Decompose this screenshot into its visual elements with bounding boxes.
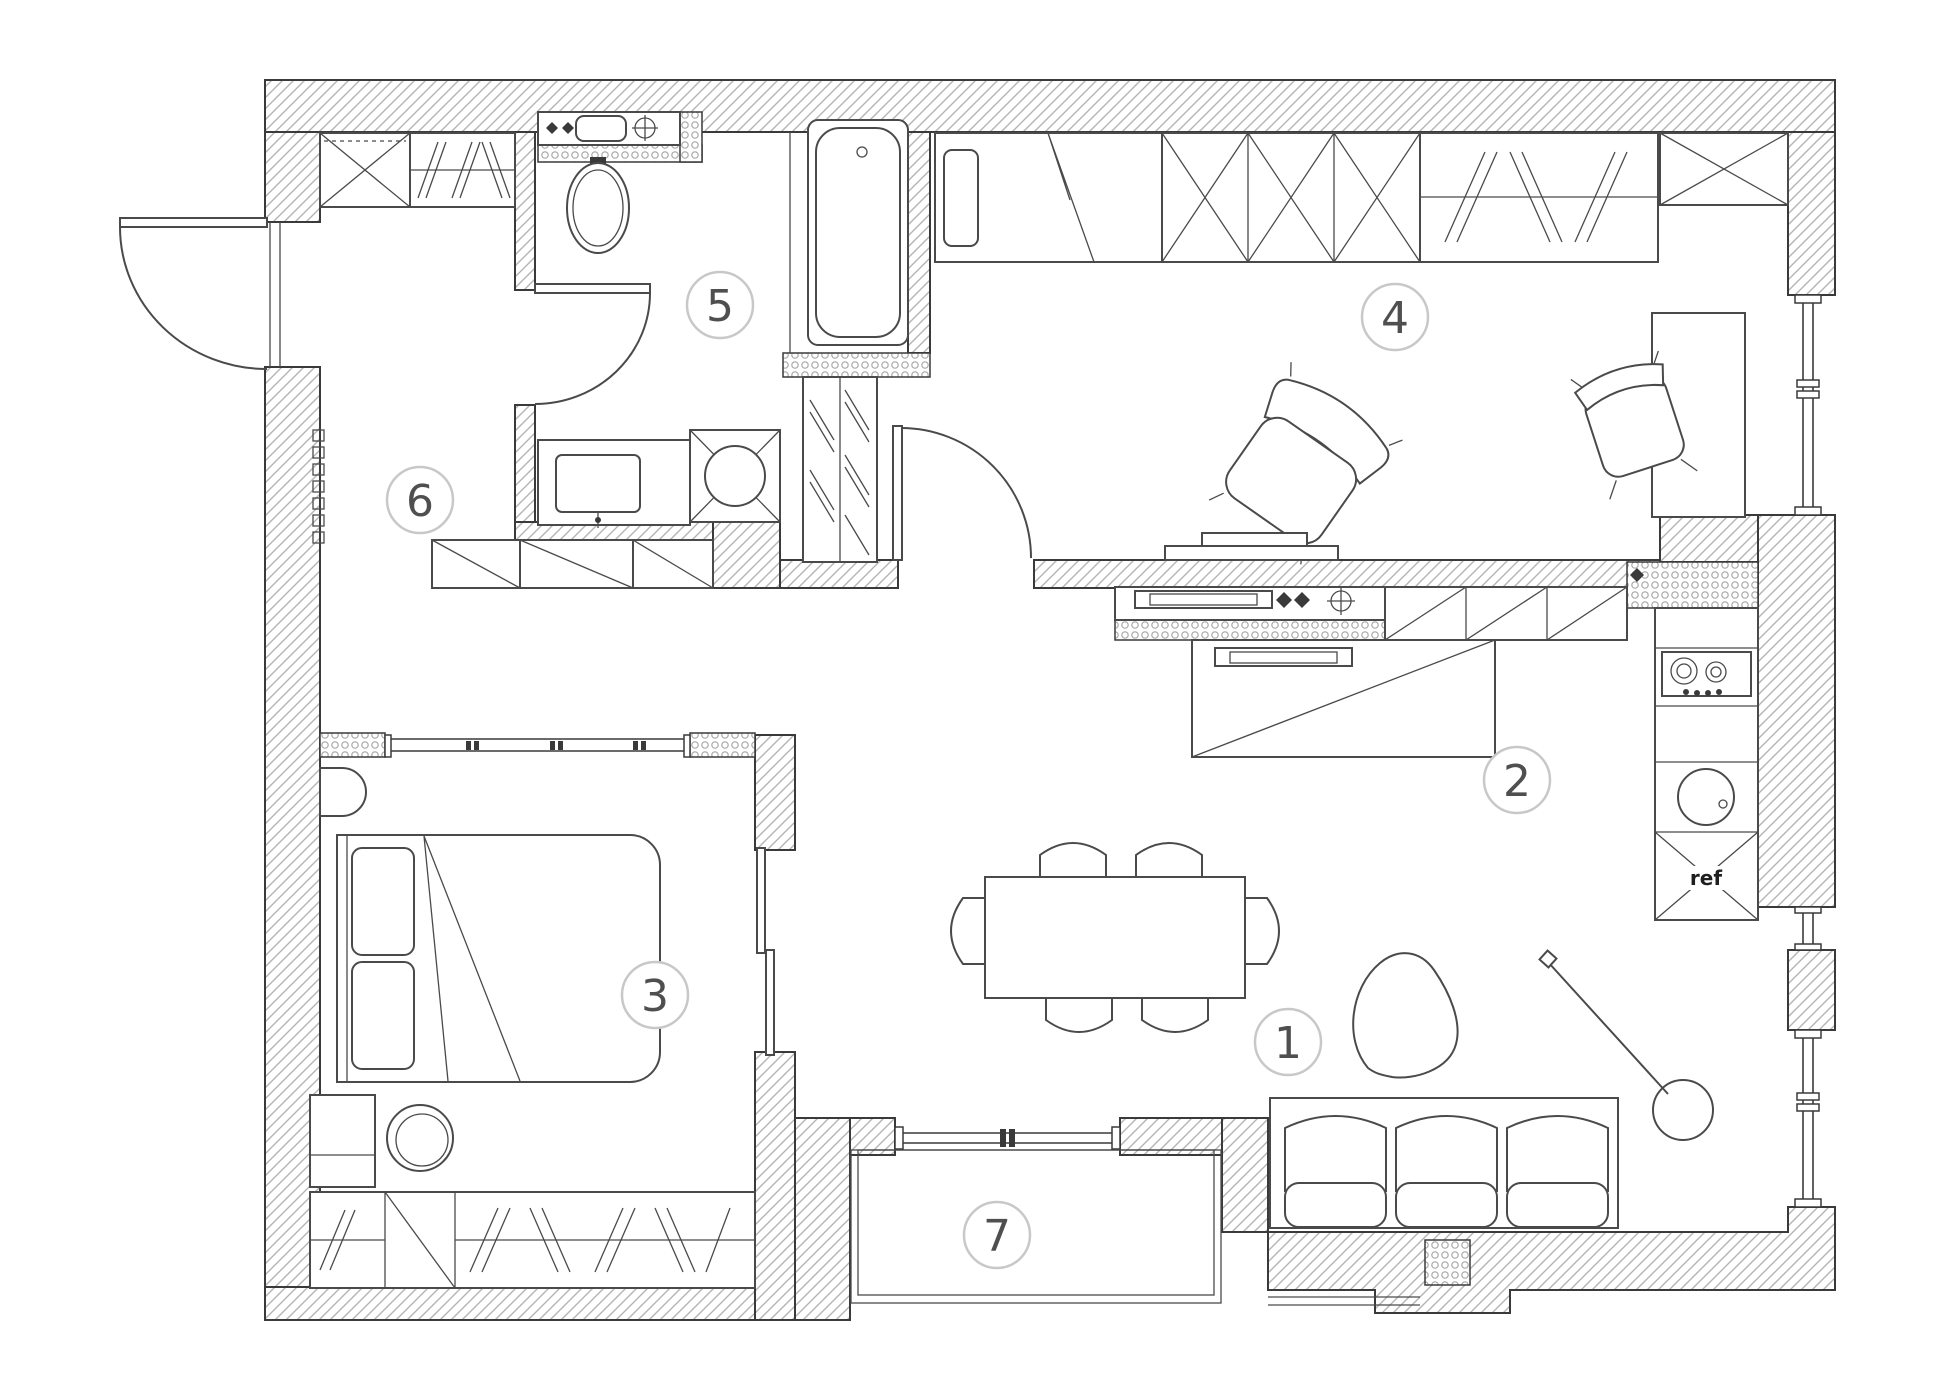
- entrance-door: [120, 218, 280, 369]
- wall-balcony-right-pillar: [1222, 1118, 1268, 1232]
- wall-balcony-left-pillar: [795, 1118, 850, 1320]
- wall-bedroom-right-lower: [755, 1052, 795, 1320]
- svg-text:7: 7: [983, 1211, 1011, 1262]
- dining-table: [985, 877, 1245, 998]
- wall-top: [265, 80, 1835, 132]
- wall-bathroom-left-a: [515, 132, 535, 290]
- coffee-table: [1353, 953, 1457, 1077]
- bathroom-door-swing: [535, 293, 650, 404]
- wall-bathroom-right: [908, 132, 930, 353]
- svg-text:5: 5: [706, 281, 734, 332]
- sofa: [1270, 1098, 1618, 1228]
- room4-door: [893, 426, 1031, 560]
- bathroom-sink-counter: [538, 440, 690, 528]
- room4-bed: [935, 133, 1162, 262]
- bathroom-door-leaf: [535, 284, 650, 293]
- svg-text:4: 4: [1381, 293, 1409, 344]
- entrance-door-leaf: [120, 218, 267, 227]
- washing-machine: [690, 430, 780, 522]
- svg-text:2: 2: [1503, 756, 1531, 807]
- refrigerator-label: ref: [1690, 866, 1722, 890]
- bedroom-sliding-door: [757, 848, 774, 1055]
- partition-counter-strip: [1115, 620, 1385, 640]
- window-balcony-door: [895, 1127, 1120, 1149]
- kitchen-right-column: ref: [1655, 608, 1758, 920]
- wall-right-kitchen-block: [1758, 515, 1835, 907]
- entrance-door-swing: [120, 227, 267, 369]
- toilet: [567, 157, 629, 253]
- room-label-bedroom: 3: [622, 962, 688, 1028]
- room-label-room4: 4: [1362, 284, 1428, 350]
- wall-room4-bottom-left: [780, 560, 898, 588]
- partition-kitchen-top: [1627, 562, 1758, 608]
- bedroom-bed: [337, 835, 660, 1082]
- window-living-right: [1795, 1030, 1821, 1207]
- kitchen-counter-top: [1115, 587, 1385, 620]
- kitchen-oven-cabinet: [1192, 640, 1495, 757]
- glass-partition-bedroom: [385, 735, 690, 757]
- svg-text:1: 1: [1274, 1018, 1302, 1069]
- partition-bedroom-left: [320, 733, 385, 757]
- room-label-bathroom: 5: [687, 272, 753, 338]
- floor-plan: ref: [0, 0, 1956, 1379]
- room-label-hallway: 6: [387, 467, 453, 533]
- hallway-wardrobe-top: [320, 133, 515, 207]
- room-label-living: 1: [1255, 1009, 1321, 1075]
- wall-right-mid: [1788, 950, 1835, 1030]
- bathtub: [790, 120, 908, 353]
- wall-right-corner-top: [1660, 515, 1758, 562]
- wall-left-upper: [265, 132, 320, 222]
- window-room4-right: [1795, 295, 1821, 515]
- bathroom-vanity: [538, 112, 680, 145]
- bedroom-cabinet: [310, 1095, 375, 1187]
- room-label-balcony: 7: [964, 1202, 1030, 1268]
- wall-room4-bottom-right: [1034, 560, 1660, 588]
- wall-right-top: [1788, 132, 1835, 295]
- wall-bedroom-right-upper: [755, 735, 795, 850]
- bathroom-door: [535, 284, 650, 404]
- hallway-cabinets: [432, 540, 713, 588]
- corridor-wardrobe: [803, 377, 877, 562]
- wall-bathroom-left-b: [515, 405, 535, 522]
- svg-text:3: 3: [641, 971, 669, 1022]
- bedroom-stool: [387, 1105, 453, 1171]
- window-kitchen-right: [1795, 907, 1821, 950]
- bedroom-wardrobe: [310, 1192, 755, 1288]
- partition-bedroom-right: [690, 733, 755, 757]
- room4-door-leaf: [893, 426, 902, 560]
- partition-bathtub-bottom: [783, 353, 930, 377]
- room4-wardrobe: [1162, 133, 1788, 262]
- partition-vanity-right: [680, 112, 702, 162]
- svg-text:6: 6: [406, 476, 434, 527]
- partition-bottom-square: [1425, 1240, 1470, 1285]
- partition-vanity-bottom: [538, 145, 702, 162]
- room4-door-swing: [901, 428, 1031, 558]
- bedroom-nightstand: [320, 768, 366, 816]
- wall-bathroom-bottom-block: [713, 522, 780, 588]
- room-label-kitchen: 2: [1484, 747, 1550, 813]
- kitchen-cabinets-top: [1385, 587, 1627, 640]
